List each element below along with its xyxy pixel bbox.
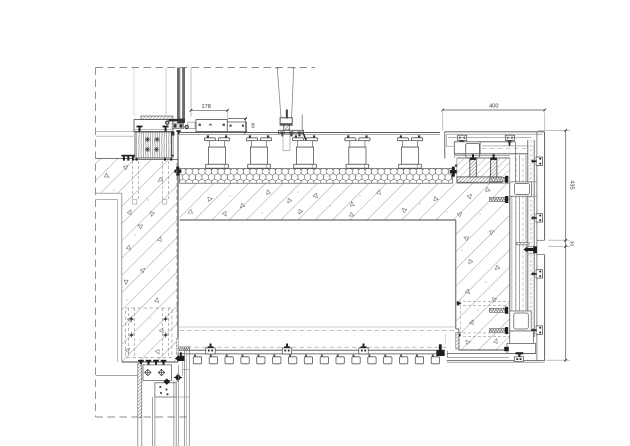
svg-text:400: 400 bbox=[489, 104, 498, 110]
svg-text:178: 178 bbox=[202, 104, 211, 110]
svg-text:90: 90 bbox=[250, 123, 256, 129]
svg-text:30: 30 bbox=[569, 241, 575, 247]
svg-text:435: 435 bbox=[569, 180, 575, 189]
